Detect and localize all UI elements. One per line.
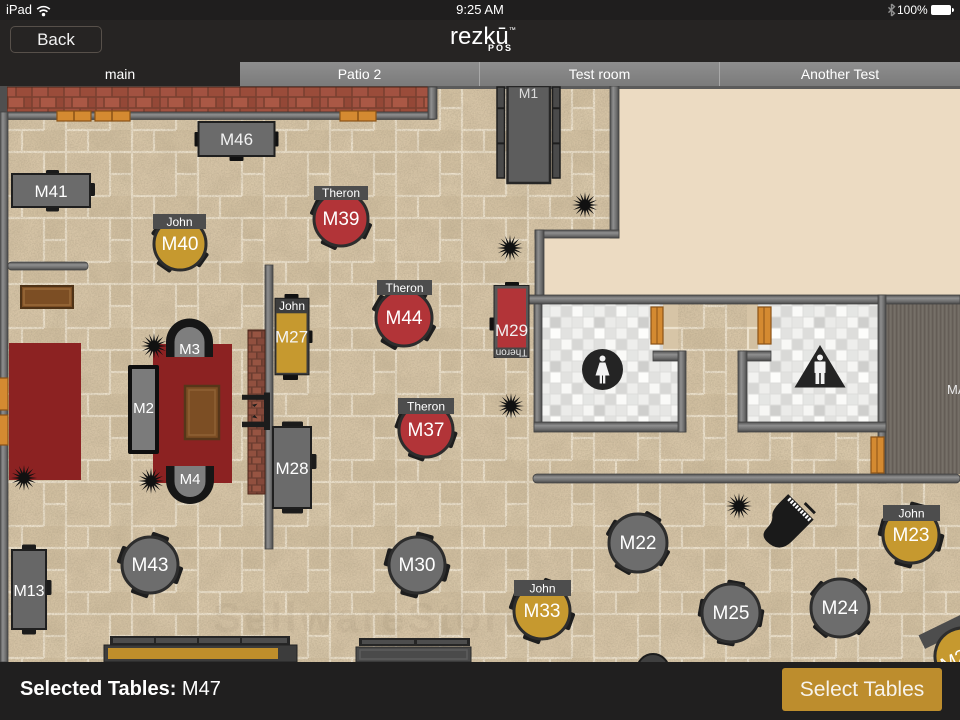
svg-text:Theron: Theron <box>496 347 528 358</box>
svg-text:M2: M2 <box>133 400 154 417</box>
svg-text:M4: M4 <box>180 471 201 488</box>
svg-text:M41: M41 <box>34 182 67 201</box>
svg-text:Theron: Theron <box>385 281 423 295</box>
svg-text:John: John <box>529 582 555 596</box>
svg-text:Theron: Theron <box>407 400 445 414</box>
svg-text:M23: M23 <box>893 525 930 546</box>
svg-text:John: John <box>898 507 924 521</box>
svg-text:John: John <box>279 299 305 313</box>
svg-text:M28: M28 <box>275 459 308 478</box>
svg-text:M40: M40 <box>162 234 199 255</box>
svg-text:M46: M46 <box>220 130 253 149</box>
svg-text:M29: M29 <box>495 321 528 340</box>
svg-text:M30: M30 <box>399 555 436 576</box>
svg-text:M25: M25 <box>713 603 750 624</box>
svg-text:M3: M3 <box>179 341 200 358</box>
svg-text:SellwareStores: SellwareStores <box>213 594 556 641</box>
svg-text:M37: M37 <box>408 420 445 441</box>
svg-text:M43: M43 <box>132 555 169 576</box>
svg-text:Theron: Theron <box>322 186 360 200</box>
svg-text:M22: M22 <box>620 533 657 554</box>
svg-text:M13: M13 <box>13 583 44 600</box>
svg-text:M1: M1 <box>519 86 539 101</box>
svg-text:MAI: MAI <box>947 382 960 397</box>
svg-text:M39: M39 <box>323 209 360 230</box>
svg-text:M44: M44 <box>386 308 423 329</box>
svg-text:John: John <box>166 215 192 229</box>
svg-text:M27: M27 <box>275 328 308 347</box>
svg-text:M33: M33 <box>524 601 561 622</box>
svg-text:M24: M24 <box>822 598 859 619</box>
